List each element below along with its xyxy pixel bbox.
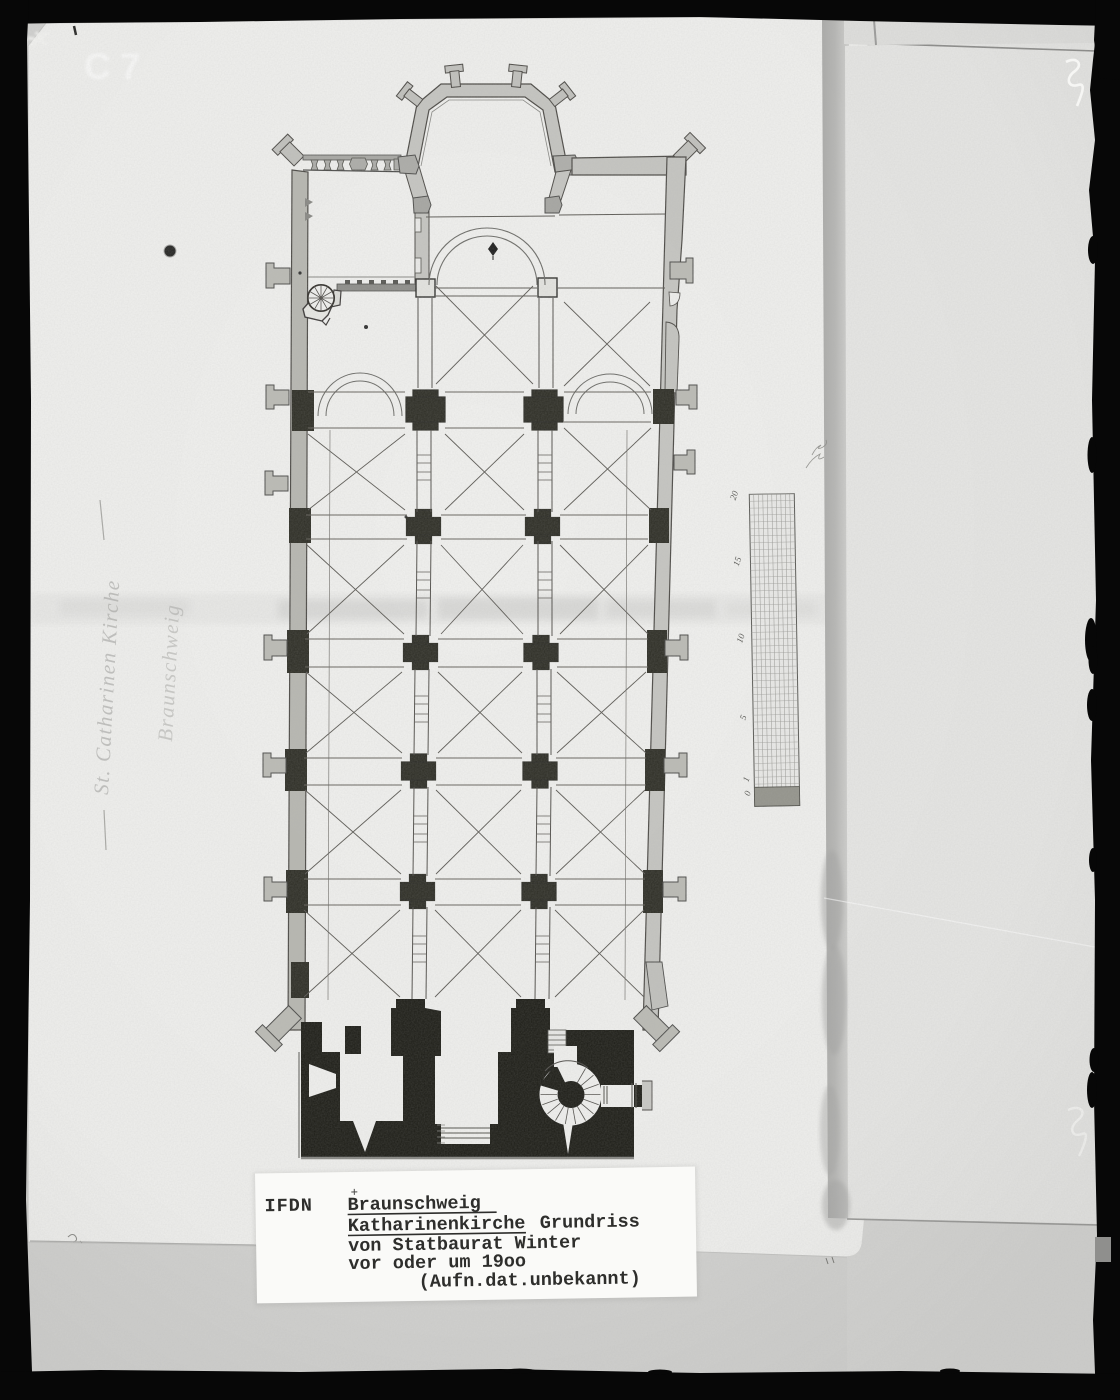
svg-text:Grundriss: Grundriss: [540, 1211, 640, 1234]
svg-text:(Aufn.dat.unbekannt): (Aufn.dat.unbekannt): [419, 1268, 641, 1292]
svg-text:IFDN: IFDN: [264, 1196, 313, 1218]
